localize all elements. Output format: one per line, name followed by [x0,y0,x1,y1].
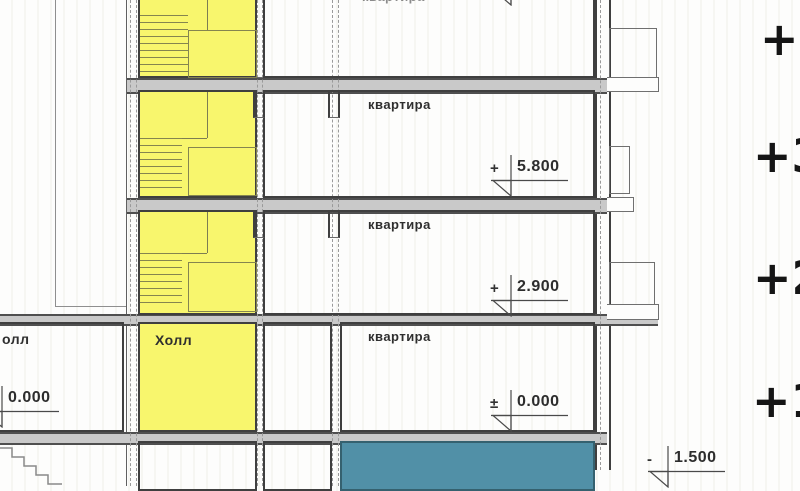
building-section-drawing: { "rooms": { "hall": "Холл", "hall_left_… [0,0,800,486]
pool-basin [340,441,595,491]
apartment-label-2: квартира [368,217,431,232]
wall-stub-2b [328,212,340,238]
story-marker-2: +2 [753,255,800,301]
wall-stub-3b [328,92,340,118]
elevation-marker-2900: + 2.900 [488,275,583,317]
elevation-marker-minus-1500: - 1.500 [645,446,740,488]
axis-d-dash [600,0,601,470]
wall-stub-3a [253,92,265,118]
elevation-value: 0.000 [8,389,51,407]
apartment-label-ground: квартира [368,329,431,344]
basement-room-a [138,441,257,491]
balcony-rail-low [609,262,655,305]
stair-line-2 [207,212,208,253]
elevation-value: 2.900 [517,278,560,296]
balcony-rail-mid [609,146,630,194]
section-stage: квартира квартира квартира квартира Холл… [0,0,800,486]
elevation-value: 5.800 [517,158,560,176]
left-ceiling-line [55,306,127,307]
balcony-slab-low [607,304,659,320]
elevation-value: 0.000 [517,393,560,411]
story-marker-1: +1 [752,378,800,424]
elevation-marker-left-cut: 0.000 [0,386,74,428]
balcony-slab-mid [607,197,634,212]
stair-line-top [207,0,208,30]
axis-a-dash-1 [130,0,131,486]
stair-landing-top [188,30,257,78]
stair-treads-2 [140,253,182,306]
elevation-marker-0000: ± 0.000 [488,390,583,432]
elevation-marker-top-cut [488,0,583,6]
elevation-sign: - [647,451,652,468]
axis-a-dash-2 [136,0,137,486]
stair-landing-2 [188,262,257,312]
elevation-sign: ± [490,395,498,412]
apartment-label-3: квартира [368,97,431,112]
stair-break-2 [182,253,207,254]
apartment-room-top [263,0,595,78]
stair-break-3 [182,138,207,139]
elevation-sign: + [490,280,499,297]
hall-left-label-cut: олл [2,331,30,347]
exterior-stairs [0,444,64,486]
story-marker-4: +4 [760,16,800,62]
left-facade-line [55,0,56,307]
wall-stub-2a [253,212,265,238]
stair-line-3 [207,92,208,138]
basement-room-b [263,441,332,491]
hall-label: Холл [155,332,192,348]
apartment-label-top: квартира [362,0,425,4]
balcony-rail-top [609,28,657,78]
stair-landing-3 [188,147,257,196]
corridor-room-ground [263,322,332,432]
stair-treads-3 [140,138,182,191]
column-a-face-line [126,0,127,486]
elevation-sign: + [490,160,499,177]
elevation-value: 1.500 [674,449,717,467]
story-marker-3: +3 [753,133,800,179]
stair-treads-top [140,15,188,78]
elevation-marker-5800: + 5.800 [488,155,583,197]
balcony-slab-top [607,77,659,92]
